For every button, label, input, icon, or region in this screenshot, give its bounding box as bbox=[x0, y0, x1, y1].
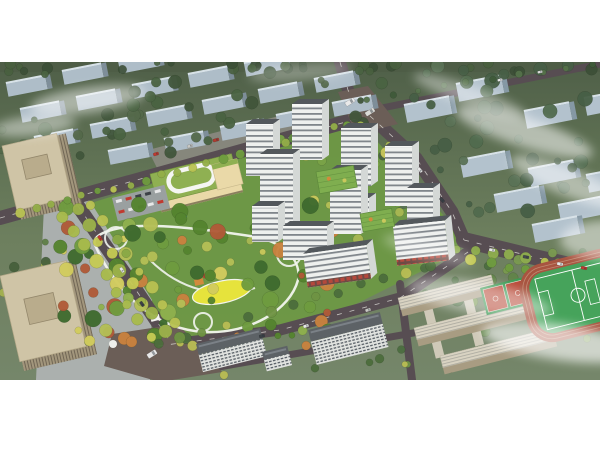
bottom-white-margin bbox=[0, 380, 600, 450]
aerial-rendering-image bbox=[0, 0, 600, 450]
park-tent bbox=[109, 340, 117, 348]
rendering-scene bbox=[0, 50, 600, 382]
page bbox=[0, 0, 600, 450]
residential-tower bbox=[252, 201, 285, 242]
top-white-margin bbox=[0, 0, 600, 62]
